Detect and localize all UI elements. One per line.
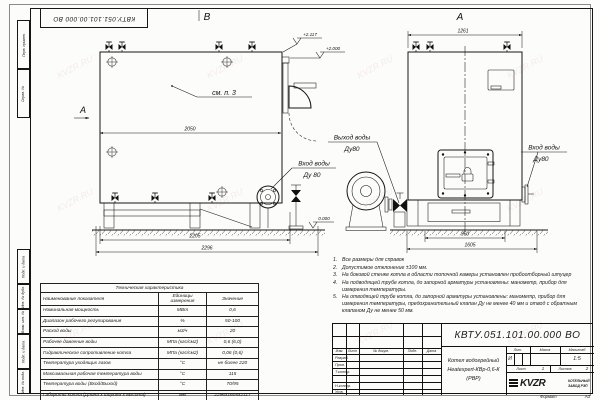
cell-unit: °С bbox=[159, 369, 207, 380]
row-razrab: Разраб. bbox=[333, 354, 359, 361]
drain-valve-icon bbox=[209, 193, 216, 203]
sheets-value: 2 bbox=[580, 365, 594, 372]
cell-value: 20 bbox=[207, 327, 259, 338]
note-text: Допустимое отклонение ±100 мм. bbox=[342, 265, 591, 272]
cell-value: 2296х1605х2117 bbox=[207, 390, 259, 400]
water-outlet-valve bbox=[385, 193, 407, 227]
cell-name: Расход воды bbox=[41, 327, 159, 338]
product-line1: Котел водогрейный bbox=[448, 357, 499, 366]
cell-unit: °С bbox=[159, 380, 207, 391]
cell-unit: м3/ч bbox=[159, 327, 207, 338]
table-row: Рабочее давление водыМПа (кгс/см2)0,6 (6… bbox=[41, 337, 259, 348]
cell-unit: МПа (кгс/см2) bbox=[159, 337, 207, 348]
divider bbox=[514, 353, 515, 365]
company-logo: KVZR bbox=[506, 372, 566, 395]
note-number: 1. bbox=[333, 257, 342, 264]
title-block: Изм. Лист № докум. Подп. Дата Разраб. Пр… bbox=[332, 323, 593, 394]
safety-valve bbox=[289, 185, 303, 229]
note-item: 4.На подводящей трубе котла, до запорной… bbox=[333, 280, 591, 293]
air-valve-icon bbox=[427, 42, 434, 52]
table-row: Максимальная рабочая температура воды°С1… bbox=[41, 369, 259, 380]
row-nkontr: Н.контр. bbox=[333, 382, 359, 389]
cell-name: Номинальная мощность bbox=[41, 306, 159, 317]
row-tkontr: Т.контр. bbox=[333, 368, 359, 375]
logo-subtitle: КОТЕЛЬНЫЙ ЗАВОД РЭП bbox=[566, 372, 594, 395]
table-row: Габариты котла (Длина х ширина х высота)… bbox=[41, 390, 259, 400]
blower-fan bbox=[346, 172, 386, 231]
elevation-marks: +2.117 +2.000 0.000 bbox=[283, 32, 345, 228]
elevation-mid: +2.000 bbox=[326, 46, 341, 51]
door-handle bbox=[446, 174, 460, 177]
cell-unit: мм bbox=[159, 390, 207, 400]
table-row: Температура воды (Вход/Выход)°С70/95 bbox=[41, 380, 259, 391]
sheet-value: 1 bbox=[536, 365, 550, 372]
position-mark-icon bbox=[216, 186, 228, 198]
note-item: 2.Допустимое отклонение ±100 мм. bbox=[333, 265, 591, 272]
position-mark-icon bbox=[106, 146, 118, 158]
scale-value: 1:5 bbox=[560, 353, 594, 365]
inlet-label-a: Вход воды bbox=[528, 144, 560, 152]
margin-label: Инв. № дубл. bbox=[22, 285, 26, 307]
divider bbox=[422, 324, 423, 395]
cell-name: Габариты котла (Длина х ширина х высота) bbox=[41, 390, 159, 400]
col-header-value: Значение bbox=[207, 293, 259, 306]
cell-unit: МВт bbox=[159, 306, 207, 317]
outlet-size-a: Ду80 bbox=[343, 146, 360, 153]
table-row: Диапазон рабочего регулирования%50-100 bbox=[41, 316, 259, 327]
cell-value: не более 220 bbox=[207, 358, 259, 369]
ash-drawer bbox=[428, 203, 500, 222]
logo-sub-line2: ЗАВОД РЭП bbox=[568, 384, 594, 388]
logo-word: KVZR bbox=[520, 378, 545, 389]
dim-b-top: 2050 bbox=[183, 127, 195, 133]
cell-name: Гидравлическое сопротивление котла bbox=[41, 348, 159, 359]
col-header-unit: Единицы измерения bbox=[159, 293, 207, 306]
table-row: Температура уходящих газов°Сне более 220 bbox=[41, 358, 259, 369]
note-item: 5.На отводящей трубе котла, до запорной … bbox=[333, 294, 591, 314]
cell-value: 70/95 bbox=[207, 380, 259, 391]
cell-name: Температура уходящих газов bbox=[41, 358, 159, 369]
elevation-ground: 0.000 bbox=[318, 216, 330, 221]
table-title: Техническая характеристика bbox=[41, 284, 259, 293]
note-text: На подводящей трубе котла, до запорной а… bbox=[342, 280, 591, 293]
air-valve-icon bbox=[106, 42, 113, 52]
dim-a-top: 1261 bbox=[457, 29, 468, 35]
note-item: 1.Все размеры для справок bbox=[333, 257, 591, 264]
row-prov: Пров. bbox=[333, 361, 359, 368]
drain-valve-icon bbox=[112, 193, 119, 203]
dim-b-inner: 2205 bbox=[188, 234, 200, 240]
lit-label: Лит. bbox=[506, 346, 530, 353]
note-number: 2. bbox=[333, 265, 342, 272]
cell-value: 115 bbox=[207, 369, 259, 380]
note-text: На боковой стенке котла в области топочн… bbox=[342, 272, 591, 279]
margin-cell: Справ. № bbox=[17, 69, 30, 118]
margin-label: Взам. инв. № bbox=[22, 310, 26, 332]
doc-number: КВТУ.051.101.00.000 ВО bbox=[441, 324, 594, 346]
base-frame bbox=[407, 200, 520, 226]
note-number: 3. bbox=[333, 272, 342, 279]
note-number: 4. bbox=[333, 280, 342, 293]
dim-b-outer: 2296 bbox=[200, 246, 212, 252]
cell-name: Диапазон рабочего регулирования bbox=[41, 316, 159, 327]
water-inlet-flange bbox=[257, 186, 279, 228]
drawing-sheet: KVZR.RU KVZR.RU KVZR.RU KVZR.RU KVZR.RU … bbox=[0, 0, 600, 400]
margin-cell: Перв. примен. bbox=[17, 20, 30, 69]
margin-cell: Подп. и дата bbox=[17, 334, 30, 369]
air-valve-icon bbox=[504, 42, 511, 52]
note-text: Все размеры для справок bbox=[342, 257, 591, 264]
view-direction-marker: А bbox=[79, 105, 86, 115]
cell-value: 0,6 (6,0) bbox=[207, 337, 259, 348]
divider bbox=[522, 353, 523, 365]
cell-name: Температура воды (Вход/Выход) bbox=[41, 380, 159, 391]
col-doc: № докум. bbox=[359, 348, 403, 354]
notes-block: 1.Все размеры для справок 2.Допустимое о… bbox=[333, 257, 591, 315]
cell-value: 50-100 bbox=[207, 316, 259, 327]
margin-cell: Взам. инв. № bbox=[17, 309, 30, 334]
cell-unit: % bbox=[159, 316, 207, 327]
logo-mark-icon bbox=[509, 379, 518, 388]
margin-label: Подп. и дата bbox=[22, 340, 26, 363]
col-podp: Подп. bbox=[403, 348, 422, 354]
cell-value: 0,6 bbox=[207, 306, 259, 317]
margin-cell: Инв. № дубл. bbox=[17, 284, 30, 309]
divider bbox=[333, 336, 441, 337]
furnace-door bbox=[438, 150, 494, 198]
col-data: Дата bbox=[422, 348, 441, 354]
position-mark-icon bbox=[106, 56, 118, 68]
divider bbox=[359, 324, 360, 395]
drain-valve-icon bbox=[152, 193, 159, 203]
cell-name: Максимальная рабочая температура воды bbox=[41, 369, 159, 380]
table-row: Расход водым3/ч20 bbox=[41, 327, 259, 338]
inlet-size-b: Ду 80 bbox=[303, 172, 321, 179]
tech-characteristics-table: Техническая характеристика Наименование … bbox=[40, 283, 259, 400]
air-valve-icon bbox=[249, 42, 256, 52]
margin-label: Подп. и дата bbox=[22, 255, 26, 278]
view-b-label: В bbox=[204, 12, 211, 23]
lit-value: И bbox=[506, 353, 514, 365]
col-header-name: Наименование показателя bbox=[41, 293, 159, 306]
margin-cell: Подп. и дата bbox=[17, 249, 30, 284]
view-a-label: А bbox=[456, 12, 464, 23]
note-text: На отводящей трубе котла, до запорной ар… bbox=[342, 294, 591, 314]
position-mark-icon bbox=[221, 56, 233, 68]
dim-a-outer: 1605 bbox=[464, 243, 475, 249]
sheets-label: Листов bbox=[550, 365, 580, 372]
divider bbox=[333, 375, 441, 376]
mass-label: Масса bbox=[530, 346, 560, 353]
product-line2: Heatexpert-КВр-0,6-К (РВР) bbox=[441, 366, 506, 384]
divider bbox=[403, 324, 404, 395]
air-valve-icon bbox=[413, 42, 420, 52]
door-lock-icon bbox=[462, 168, 473, 182]
outlet-label-a: Выход воды bbox=[334, 134, 371, 142]
note-item: 3.На боковой стенке котла в области топо… bbox=[333, 272, 591, 279]
table-row: Номинальная мощностьМВт0,6 bbox=[41, 306, 259, 317]
cell-unit: МПа (кгс/см2) bbox=[159, 348, 207, 359]
margin-label: Перв. примен. bbox=[22, 33, 26, 57]
inlet-label-b: Вход воды bbox=[298, 160, 330, 168]
margin-cell: Инв. № подл. bbox=[17, 369, 30, 394]
margin-label: Справ. № bbox=[22, 85, 26, 101]
row-utv: Утв. bbox=[333, 389, 359, 395]
sheet-label: Лист bbox=[506, 365, 536, 372]
scale-label: Масштаб bbox=[560, 346, 594, 353]
inlet-size-a: Ду80 bbox=[532, 156, 549, 163]
margin-label: Инв. № подл. bbox=[22, 370, 26, 392]
dim-a-inner: 960 bbox=[461, 232, 470, 238]
cell-unit: °С bbox=[159, 358, 207, 369]
view-a-front: А bbox=[328, 12, 567, 253]
air-valve-icon bbox=[119, 42, 126, 52]
product-name: Котел водогрейный Heatexpert-КВр-0,6-К (… bbox=[441, 346, 506, 395]
cell-value: 0,06 (0,6) bbox=[207, 348, 259, 359]
water-inlet-flange-a bbox=[522, 185, 534, 204]
table-row: Гидравлическое сопротивление котлаМПа (к… bbox=[41, 348, 259, 359]
view-b-side: В А см. п. 3 bbox=[74, 10, 345, 256]
note-number: 5. bbox=[333, 294, 342, 314]
cell-name: Рабочее давление воды bbox=[41, 337, 159, 348]
elevation-top: +2.117 bbox=[303, 32, 317, 37]
see-note-label: см. п. 3 bbox=[212, 90, 236, 97]
air-valve-icon bbox=[216, 42, 223, 52]
flue-outlet bbox=[282, 57, 317, 141]
